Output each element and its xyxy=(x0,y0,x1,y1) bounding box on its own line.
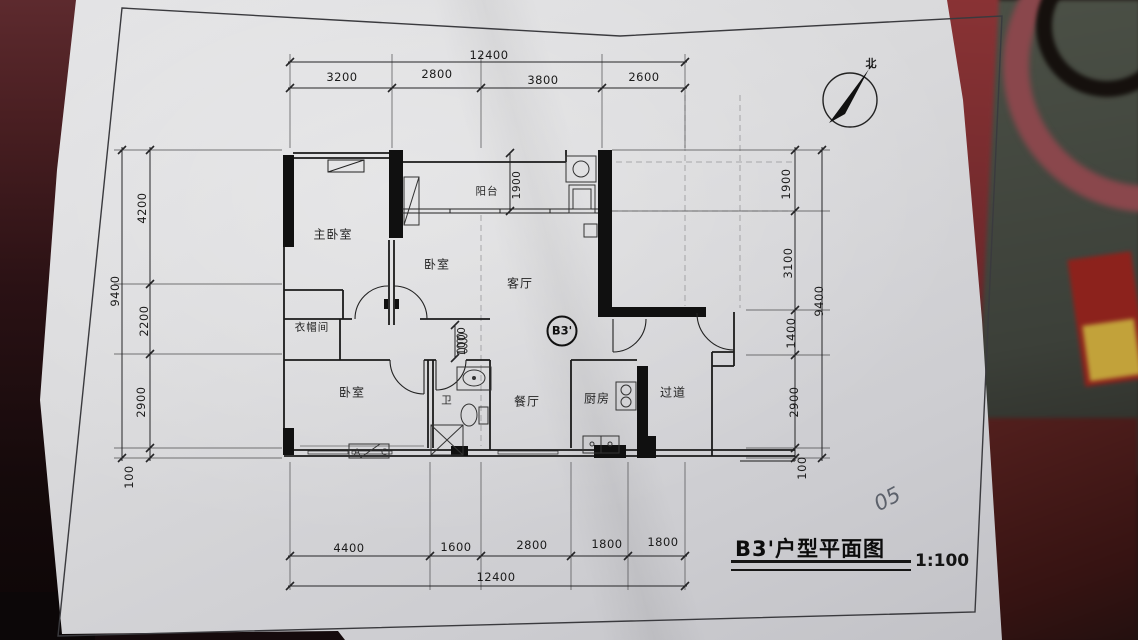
room-label-bedroom2: 卧室 xyxy=(424,256,450,273)
dim-right-seg-4: 2900 xyxy=(787,386,801,417)
room-label-cloakroom: 衣帽间 xyxy=(295,320,330,335)
dim-right-seg-5: 100 xyxy=(795,456,809,479)
dim-bottom-overall: 12400 xyxy=(476,570,515,584)
title-underline xyxy=(731,560,911,571)
room-label-balcony: 阳台 xyxy=(476,184,499,199)
room-label-kitchen: 厨房 xyxy=(584,390,610,407)
dim-left-overall: 9400 xyxy=(108,275,122,306)
room-label-master-bedroom: 主卧室 xyxy=(313,226,352,243)
north-label: 北 xyxy=(866,55,877,71)
dimension-lines xyxy=(118,58,826,590)
room-label-dining-room: 餐厅 xyxy=(514,393,540,410)
dim-bottom-seg-4: 1800 xyxy=(591,537,622,551)
dim-right-overall: 9400 xyxy=(812,285,826,316)
room-label-bathroom: 卫 xyxy=(441,393,453,408)
dim-top-seg-4: 2600 xyxy=(628,70,659,84)
drawing-title: B3'户型平面图 xyxy=(735,533,885,563)
dim-top-overall: 12400 xyxy=(469,48,508,62)
dim-right-seg-1: 1900 xyxy=(779,168,793,199)
dim-internal-hall: 1000 xyxy=(456,327,468,356)
dim-right-seg-3: 1400 xyxy=(784,317,798,348)
room-label-living-room: 客厅 xyxy=(507,275,533,292)
windows-railings xyxy=(300,160,598,454)
doors xyxy=(355,286,734,394)
dim-left-seg-1: 4200 xyxy=(135,192,149,223)
dim-bottom-seg-3: 2800 xyxy=(516,538,547,552)
dim-bottom-seg-1: 4400 xyxy=(333,541,364,555)
ac-letter-c: C xyxy=(381,448,387,458)
photo-of-floor-plan: A C 12400 3200 2800 3800 2600 4400 1600 … xyxy=(0,0,1138,640)
dim-left-seg-4: 100 xyxy=(122,465,136,488)
dim-top-seg-3: 3800 xyxy=(527,73,558,87)
dim-top-seg-1: 3200 xyxy=(326,70,357,84)
dim-left-seg-3: 2900 xyxy=(134,386,148,417)
room-label-bedroom3: 卧室 xyxy=(339,384,365,401)
floor-plan-sheet: A C 12400 3200 2800 3800 2600 4400 1600 … xyxy=(0,0,1138,640)
dim-bottom-seg-5: 1800 xyxy=(647,535,678,549)
dim-left-seg-2: 2200 xyxy=(137,305,151,336)
drawing-scale: 1:100 xyxy=(915,551,969,571)
north-arrow-icon xyxy=(823,64,877,127)
room-label-corridor: 过道 xyxy=(660,384,686,401)
extension-lines xyxy=(114,54,830,590)
dim-right-seg-2: 3100 xyxy=(781,247,795,278)
unit-badge: B3' xyxy=(547,316,578,347)
ac-letter-a: A xyxy=(354,448,361,458)
dim-internal-balcony: 1900 xyxy=(511,171,523,200)
dim-bottom-seg-2: 1600 xyxy=(440,540,471,554)
walls xyxy=(284,150,795,461)
dim-top-seg-2: 2800 xyxy=(421,67,452,81)
